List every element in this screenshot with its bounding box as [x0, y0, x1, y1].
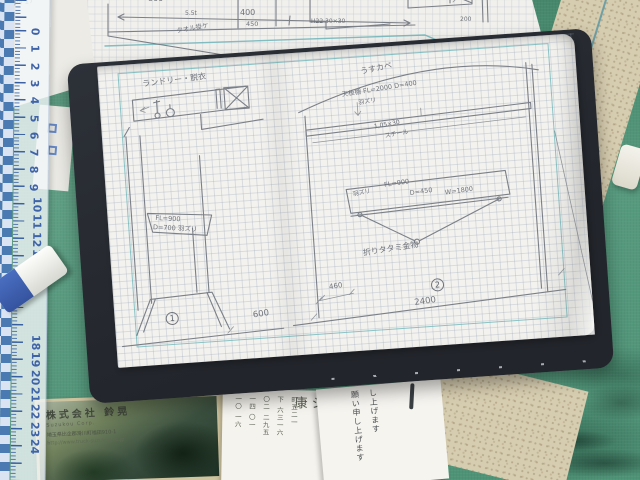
- business-card: 株式会社 鈴晃 Suzukou Corp. 埼玉県比企郡滑川町福田910-1 h…: [34, 393, 229, 480]
- business-card-photo: 株式会社 鈴晃 Suzukou Corp. 埼玉県比企郡滑川町福田910-1 h…: [38, 396, 220, 480]
- photo-desk-scene: P4 17 株式会社 鈴晃 Suzukou Corp. 埼玉県比企郡滑川町福田9…: [0, 0, 640, 480]
- letter-paper-greeting: し上げます願い申し上げます: [316, 379, 449, 480]
- note-h22: H22 30×30: [311, 19, 345, 26]
- address-columns: 町五二一下 六三一六〇二 二九五一四 〇一一〇 一六: [227, 395, 298, 478]
- dim-200: 200: [460, 17, 471, 24]
- notebook-page: ランドリー・脱衣 FL=900 D=700 羽ズリ 1 600 うすカベ 天板棚…: [97, 33, 595, 368]
- desk-level: FL=900: [155, 215, 181, 223]
- business-card-text: 株式会社 鈴晃 Suzukou Corp. 埼玉県比企郡滑川町福田910-1 h…: [45, 402, 131, 446]
- ruler-body: 01234567891011121314 18192021222324: [10, 0, 50, 480]
- black-clipboard: ランドリー・脱衣 FL=900 D=700 羽ズリ 1 600 うすカベ 天板棚…: [67, 28, 614, 404]
- dim-450: 450: [246, 21, 258, 28]
- ink-stroke: [409, 383, 414, 409]
- dim-800: 800: [148, 0, 163, 4]
- dim-400: 400: [240, 9, 255, 18]
- thickness-note: 5.5t: [185, 11, 197, 18]
- greeting-columns: し上げます願い申し上げます: [342, 388, 386, 480]
- ruler: 01234567891011121314 18192021222324: [0, 0, 59, 480]
